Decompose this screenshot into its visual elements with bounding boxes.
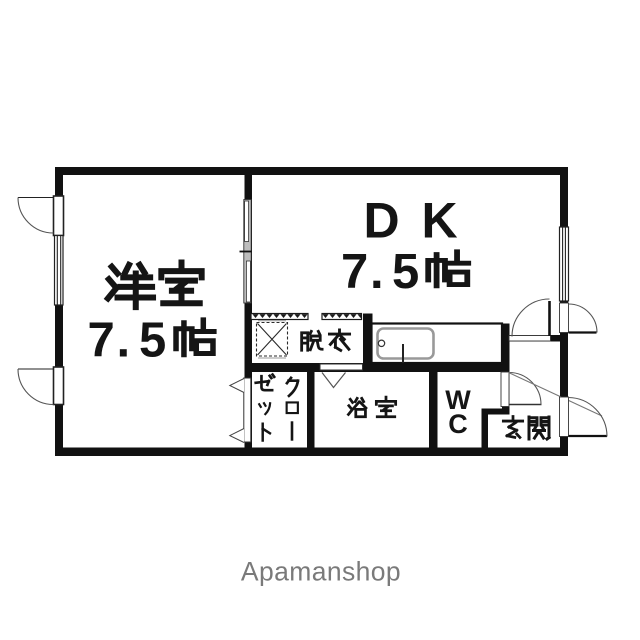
svg-text:.: . — [370, 245, 384, 299]
svg-text:5: 5 — [139, 314, 166, 368]
svg-text:C: C — [448, 409, 468, 439]
svg-text:5: 5 — [392, 245, 419, 299]
svg-text:K: K — [422, 193, 458, 249]
svg-text:Apamanshop: Apamanshop — [241, 557, 401, 587]
svg-text:D: D — [364, 193, 400, 249]
svg-text:7: 7 — [88, 314, 115, 368]
svg-text:.: . — [117, 314, 131, 368]
svg-text:7: 7 — [341, 245, 368, 299]
